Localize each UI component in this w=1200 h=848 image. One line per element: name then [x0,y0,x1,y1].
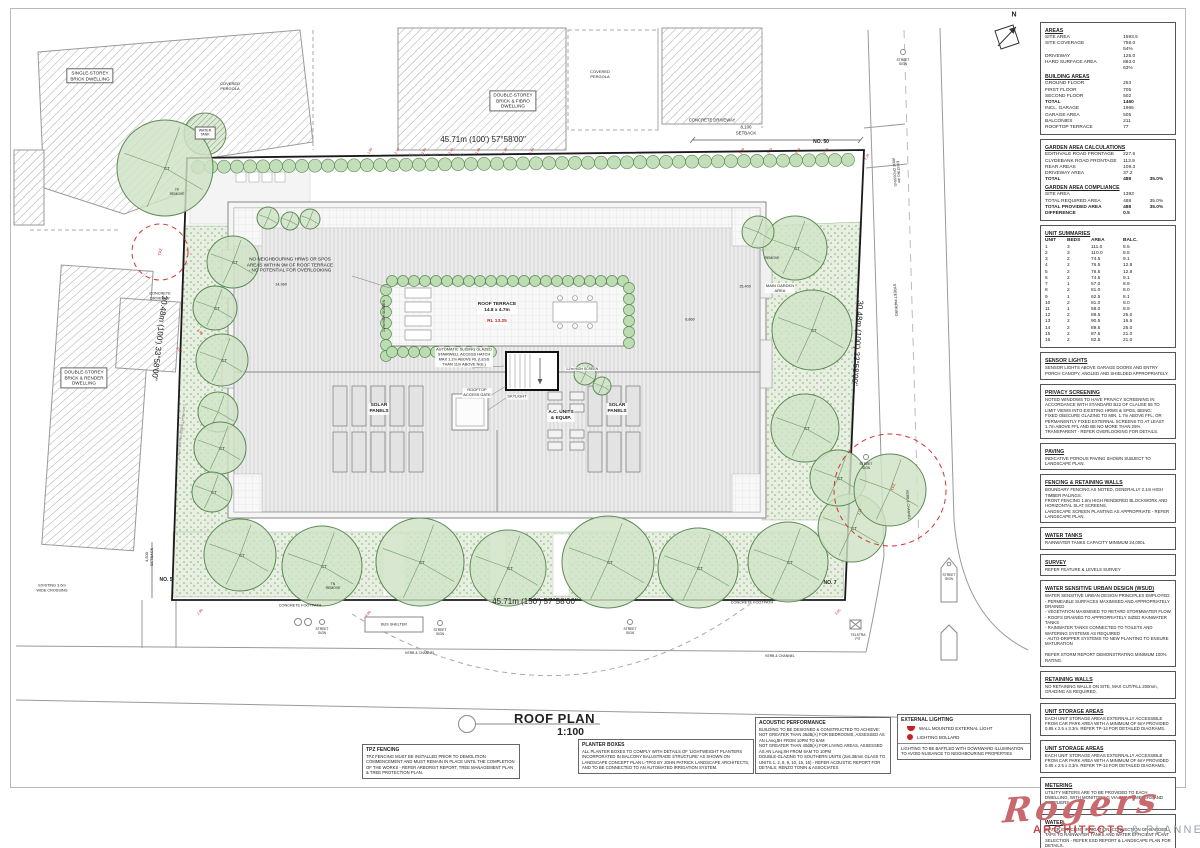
kv-value: 77 [1123,125,1149,131]
kv-label: ROOFTOP TERRACE [1045,125,1123,131]
unit-summaries-table: UNITBEDSAREABALC.13111.08.523110.08.5327… [1045,238,1171,344]
tree: CT [207,236,259,288]
sidebar-note-body: EACH UNIT STORAGE AREAS EXTERNALLY ACCES… [1045,753,1171,769]
sidebar-notes-column: AREASSITE AREA1593.5SITE COVERAGE758.054… [1040,22,1176,848]
sidebar-note-body: BOUNDARY FENCING AS NOTED, GENERALLY 2.1… [1045,487,1171,519]
tree-label: CT [851,526,857,531]
acoustic-performance-note: ACOUSTIC PERFORMANCE BUILDING TO BE DESI… [755,717,891,774]
kv-label: DIFFERENCE [1045,211,1123,217]
planter-boxes-title: PLANTER BOXES [582,742,750,748]
sidebar-note-body: NOTED WINDOWS TO HAVE PRIVACY SCREENING … [1045,397,1171,435]
stairwell-hatch [506,352,558,390]
north-arrow-icon [995,25,1019,49]
tpz-fencing-body: TPZ FENCING MUST BE INSTALLED PRIOR TO D… [366,754,516,776]
sidebar-box: GARDEN AREA CALCULATIONSEDITHVALE ROAD F… [1040,139,1176,221]
sidebar-note-body: WATER SENSITIVE URBAN DESIGN PRINCIPLES … [1045,593,1171,663]
tree: CT [117,120,213,216]
sidebar-section-title: BUILDING AREAS [1045,74,1171,80]
legend-label: LIGHTING BOLLARD [917,735,959,740]
logo-planners: & PLANNERS [1126,824,1200,836]
legend-item-bollard: LIGHTING BOLLARD [907,734,1027,740]
tree-label: CT [837,476,843,481]
sidebar-note-body: RAINWATER TANKS CAPACITY MINIMUM 24,000L [1045,540,1171,545]
tree: CT [204,519,276,591]
tree: CT [748,522,828,602]
sidebar-kv-row: 63% [1045,66,1171,72]
tpz-fencing-note: TPZ FENCING TPZ FENCING MUST BE INSTALLE… [362,744,520,779]
tree-label: CT [419,560,425,565]
lighting-bollard-icon [907,734,913,740]
tree: CT [192,472,232,512]
table-cell: 16 [1045,338,1067,344]
kv-value: 63% [1123,66,1149,72]
plan-title-block: ROOF PLAN 1:100 [514,711,584,738]
sidebar-section-title: PAVING [1045,449,1171,455]
sidebar-note-body: NO RETAINING WALLS ON SITE, MAX CUT/FILL… [1045,684,1171,695]
sidebar-box: UNIT STORAGE AREASEACH UNIT STORAGE AREA… [1040,703,1176,736]
table-cell: 82.5 [1091,338,1123,344]
sidebar-section-title: SENSOR LIGHTS [1045,358,1171,364]
tree-label: CT [794,246,800,251]
kv-label [1045,66,1123,72]
kv-percent [1150,125,1171,131]
table-cell: 21.0 [1123,338,1155,344]
sidebar-kv-row: TOTAL48835.0% [1045,177,1171,183]
sidebar-box: SURVEYREFER FEATURE & LEVELS SURVEY [1040,554,1176,576]
tree: CT [193,286,237,330]
legend-item-wall-light: WALL MOUNTED EXTERNAL LIGHT [907,726,1027,731]
logo-architects: ARCHITECTS [1033,824,1126,836]
tree-label: CT [804,426,810,431]
plan-scale: 1:100 [514,726,584,738]
sidebar-box: WATER SENSITIVE URBAN DESIGN (WSUD)WATER… [1040,580,1176,667]
tree [742,216,774,248]
tree-label: CT [607,560,613,565]
acoustic-performance-title: ACOUSTIC PERFORMANCE [759,720,887,726]
sidebar-kv-row: ROOFTOP TERRACE77 [1045,125,1171,131]
sidebar-box: UNIT SUMMARIESUNITBEDSAREABALC.13111.08.… [1040,225,1176,348]
sidebar-section-title: GARDEN AREA COMPLIANCE [1045,185,1171,191]
tree-label: CT [811,328,817,333]
skylight [452,394,488,430]
tree: CT [282,526,362,606]
rogers-logo: Rogers ARCHITECTS & PLANNERS [985,792,1195,846]
tree-label: CT [214,306,220,311]
sidebar-box: WATER TANKSRAINWATER TANKS CAPACITY MINI… [1040,527,1176,549]
sidebar-kv-row: DIFFERENCE0.5 [1045,211,1171,217]
sidebar-box: RETAINING WALLSNO RETAINING WALLS ON SIT… [1040,671,1176,699]
sidebar-section-title: UNIT STORAGE AREAS [1045,746,1171,752]
sidebar-box: PAVINGINDICATIVE POROUS PAVING SHOWN SUB… [1040,443,1176,471]
sidebar-section-title: UNIT SUMMARIES [1045,231,1171,237]
kv-value: 488 [1123,177,1149,183]
logo-subtitle: ARCHITECTS & PLANNERS [1033,824,1200,836]
sidebar-section-title: UNIT STORAGE AREAS [1045,709,1171,715]
sidebar-box: UNIT STORAGE AREASEACH UNIT STORAGE AREA… [1040,740,1176,773]
tree [593,377,611,395]
wall-light-icon [907,726,915,731]
table-cell: 2 [1067,338,1091,344]
external-lighting-title: EXTERNAL LIGHTING [901,717,1027,723]
planter-boxes-body: ALL PLANTER BOXES TO COMPLY WITH DETAILS… [582,749,750,771]
plan-title: ROOF PLAN [514,711,584,726]
tree-label: CT [164,166,170,171]
sidebar-section-title: GARDEN AREA CALCULATIONS [1045,145,1171,151]
sidebar-box: SENSOR LIGHTSSENSOR LIGHTS ABOVE GARAGE … [1040,352,1176,380]
legend-divider [898,743,1030,744]
tree: CT [376,518,464,606]
kv-value: 0.5 [1123,211,1149,217]
tree: CT [194,422,246,474]
kv-label: TOTAL [1045,177,1123,183]
external-lighting-legend: EXTERNAL LIGHTING WALL MOUNTED EXTERNAL … [897,714,1031,760]
acoustic-performance-body: BUILDING TO BE DESIGNED & CONSTRUCTED TO… [759,727,887,771]
tree-label: CT [239,553,245,558]
planter-boxes-note: PLANTER BOXES ALL PLANTER BOXES TO COMPL… [578,739,754,774]
tree-label: CT [232,260,238,265]
sidebar-section-title: FENCING & RETAINING WALLS [1045,480,1171,486]
tree: CT [562,516,654,608]
tree [574,363,596,385]
sidebar-note-body: INDICATIVE POROUS PAVING SHOWN SUBJECT T… [1045,456,1171,467]
tree: CT [470,530,546,606]
sidebar-box: PRIVACY SCREENINGNOTED WINDOWS TO HAVE P… [1040,384,1176,439]
kv-percent [1150,211,1171,217]
tree-label: CT [697,566,703,571]
drawing-sheet: CTCTCTCTCTCTCTCTCTCTCTCTCTCTCTCTCTCT [0,0,1200,848]
tree [300,209,320,229]
sidebar-section-title: AREAS [1045,28,1171,34]
tree [257,207,279,229]
sidebar-note-body: REFER FEATURE & LEVELS SURVEY [1045,567,1171,572]
sidebar-box: AREASSITE AREA1593.5SITE COVERAGE758.054… [1040,22,1176,135]
kv-percent: 35.0% [1150,177,1171,183]
tree: CT [658,528,738,608]
legend-label: WALL MOUNTED EXTERNAL LIGHT [919,726,992,731]
tree-label: CT [321,564,327,569]
kv-percent [1150,66,1171,72]
tree [854,454,926,526]
sidebar-section-title: WATER TANKS [1045,533,1171,539]
sidebar-section-title: WATER SENSITIVE URBAN DESIGN (WSUD) [1045,586,1171,592]
sidebar-section-title: SURVEY [1045,560,1171,566]
sidebar-note-body: SENSOR LIGHTS ABOVE GARAGE DOORS AND ENT… [1045,365,1171,376]
sidebar-note-body: EACH UNIT STORAGE AREAS EXTERNALLY ACCES… [1045,716,1171,732]
tree-label: CT [219,446,225,451]
tree: CT [196,334,248,386]
tpz-fencing-title: TPZ FENCING [366,747,516,753]
external-lighting-footer: LIGHTING TO BE BAFFLED WITH DOWNWARD ILL… [901,746,1027,757]
sidebar-section-title: RETAINING WALLS [1045,677,1171,683]
tree-label: CT [221,358,227,363]
tree-label: CT [211,490,217,495]
building-roof [222,202,772,518]
tree-label: CT [787,560,793,565]
sidebar-box: FENCING & RETAINING WALLSBOUNDARY FENCIN… [1040,474,1176,523]
sidebar-section-title: PRIVACY SCREENING [1045,390,1171,396]
tree: CT [772,290,852,370]
tree-label: CT [507,566,513,571]
tree [281,212,299,230]
